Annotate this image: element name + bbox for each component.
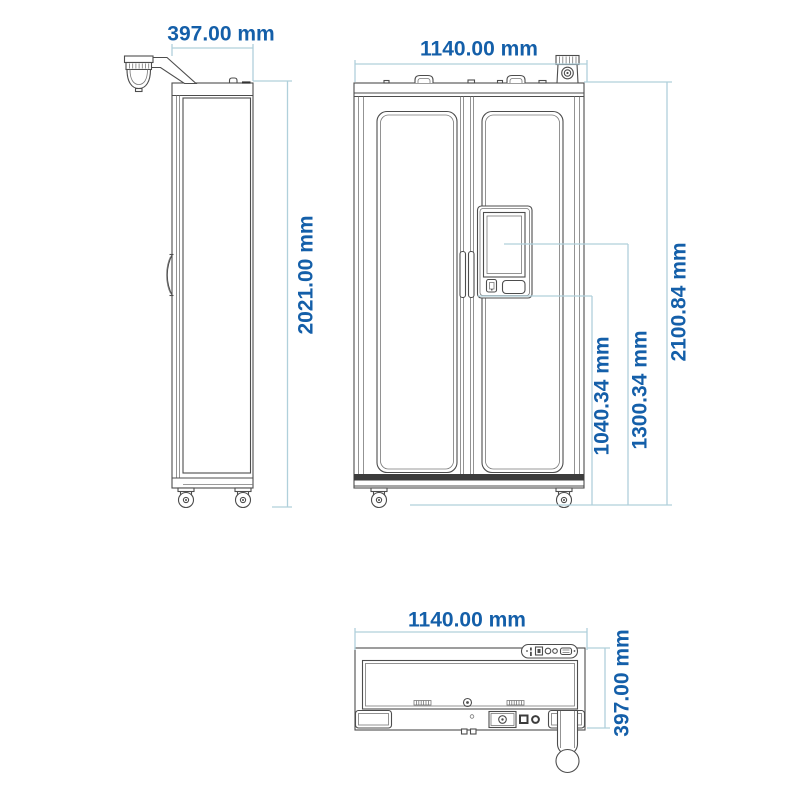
top-view: [355, 645, 585, 773]
cabinet-drawing: [0, 0, 800, 800]
top-width-label: 1140.00 mm: [408, 610, 526, 631]
kiosk-panel: [478, 206, 533, 298]
dispenser-dome-icon: [125, 56, 154, 92]
side-height-label: 2021.00 mm: [296, 215, 317, 334]
drawing-canvas: 397.00 mm 2021.00 mm 1140.00 mm 2100.84 …: [0, 0, 800, 800]
front-width-label: 1140.00 mm: [420, 39, 538, 60]
camera-icon: [556, 56, 579, 84]
screen-center-height-label: 1300.34 mm: [630, 330, 651, 449]
side-depth-label: 397.00 mm: [167, 24, 274, 45]
panel-bottom-height-label: 1040.34 mm: [592, 336, 613, 455]
front-door-handle-left: [460, 252, 466, 298]
front-total-height-label: 2100.84 mm: [669, 242, 690, 361]
dispenser-arm-top: [556, 711, 579, 773]
top-depth-label: 397.00 mm: [612, 629, 633, 736]
kick-plate: [354, 474, 584, 481]
front-view: [354, 56, 584, 508]
side-view: [125, 56, 254, 508]
front-door-handle-right: [469, 252, 475, 298]
top-connector-panel-icon: [522, 645, 578, 659]
